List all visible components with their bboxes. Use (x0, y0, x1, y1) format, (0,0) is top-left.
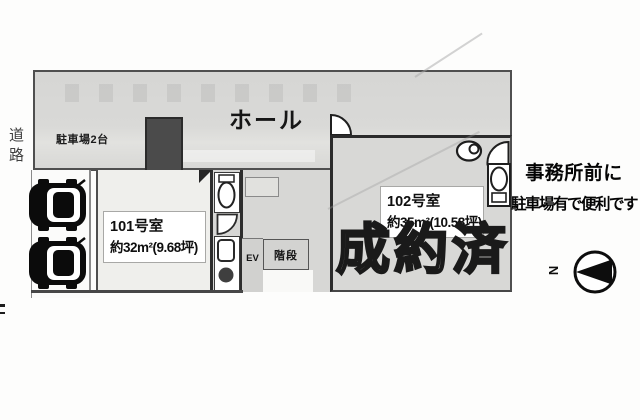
wall (210, 170, 213, 292)
road-label: 道路 (5, 127, 26, 191)
room-101: 101号室 約32m²(9.68坪) (96, 170, 210, 290)
door-swing-icon (199, 170, 214, 185)
elevator: EV (242, 238, 263, 292)
sold-stamp: 成約済 (335, 222, 511, 279)
hall-fixture-box (245, 177, 279, 197)
compass-north-label: N (546, 266, 561, 275)
building-bottom-wall (31, 290, 243, 293)
open-area (263, 270, 313, 292)
car-top-view-icon (28, 179, 88, 231)
washing-machine-icon (219, 268, 234, 283)
toilet-room (214, 172, 240, 213)
edge-artifact (0, 304, 6, 320)
core-area: EV 階段 (210, 170, 330, 292)
sink-icon (455, 139, 487, 163)
sink-unit (214, 236, 240, 292)
room-101-name: 101号室 (110, 217, 199, 238)
compass-icon (572, 249, 618, 295)
note-line-2: 駐車場有で便利です (508, 192, 640, 214)
door-swing-icon (329, 112, 355, 137)
sink-icon (218, 240, 234, 261)
elevator-label: EV (246, 253, 259, 264)
toilet-icon (215, 173, 238, 211)
door-swing-icon (216, 213, 239, 236)
note-block: 事務所前に 駐車場有で便利です (508, 158, 640, 214)
scan-noise (65, 84, 365, 102)
stairs-label: 階段 (274, 247, 298, 263)
room-102: 102号室 約35m²(10.58坪) 成約済 (330, 135, 512, 292)
hall-label: ホール (229, 101, 304, 135)
stairs: 階段 (263, 239, 309, 270)
parking-label: 駐車場2台 (56, 131, 109, 147)
note-line-1: 事務所前に (508, 158, 640, 185)
car-top-view-icon (28, 237, 88, 289)
room-101-label-box: 101号室 約32m²(9.68坪) (103, 211, 206, 263)
room-101-area: 約32m²(9.68坪) (110, 238, 199, 258)
scan-noise (414, 33, 482, 78)
room-102-name: 102号室 (387, 192, 477, 213)
parking-boundary-line (89, 170, 91, 290)
